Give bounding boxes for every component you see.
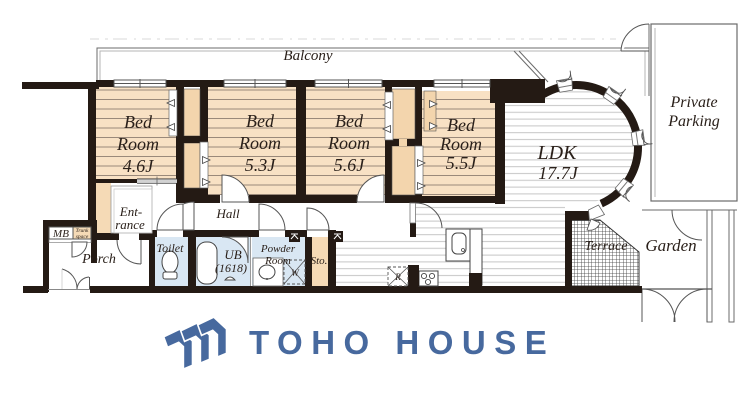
svg-text:Terrace: Terrace bbox=[584, 239, 627, 254]
svg-text:Bed: Bed bbox=[335, 111, 364, 131]
svg-text:Hall: Hall bbox=[215, 206, 240, 221]
svg-text:Bed: Bed bbox=[124, 112, 153, 132]
svg-text:space: space bbox=[76, 234, 89, 240]
svg-text:MB: MB bbox=[52, 228, 69, 240]
svg-text:Porch: Porch bbox=[81, 252, 116, 267]
svg-text:Room: Room bbox=[116, 134, 159, 154]
svg-text:Bed: Bed bbox=[447, 115, 476, 135]
svg-text:4.6J: 4.6J bbox=[123, 156, 155, 176]
svg-text:UB: UB bbox=[224, 247, 241, 262]
svg-text:Bed: Bed bbox=[246, 111, 275, 131]
svg-text:Room: Room bbox=[238, 133, 281, 153]
svg-text:Balcony: Balcony bbox=[283, 48, 332, 64]
svg-text:5.5J: 5.5J bbox=[446, 153, 478, 173]
svg-text:Toilet: Toilet bbox=[157, 241, 185, 255]
svg-text:Private: Private bbox=[669, 94, 717, 111]
svg-text:LDK: LDK bbox=[537, 142, 579, 164]
svg-text:Garden: Garden bbox=[645, 236, 696, 255]
svg-text:Parking: Parking bbox=[667, 113, 720, 130]
svg-text:R: R bbox=[394, 272, 401, 282]
svg-text:rance: rance bbox=[115, 217, 145, 232]
svg-text:Powder: Powder bbox=[260, 243, 296, 255]
svg-text:Room: Room bbox=[264, 255, 291, 267]
svg-text:Room: Room bbox=[439, 134, 482, 154]
svg-text:Sto.: Sto. bbox=[311, 255, 328, 267]
svg-text:TOHO HOUSE: TOHO HOUSE bbox=[249, 324, 555, 361]
svg-text:5.6J: 5.6J bbox=[334, 155, 366, 175]
svg-text:Room: Room bbox=[327, 133, 370, 153]
svg-text:5.3J: 5.3J bbox=[245, 155, 277, 175]
svg-text:(1618): (1618) bbox=[215, 261, 247, 275]
svg-text:17.7J: 17.7J bbox=[538, 163, 579, 183]
